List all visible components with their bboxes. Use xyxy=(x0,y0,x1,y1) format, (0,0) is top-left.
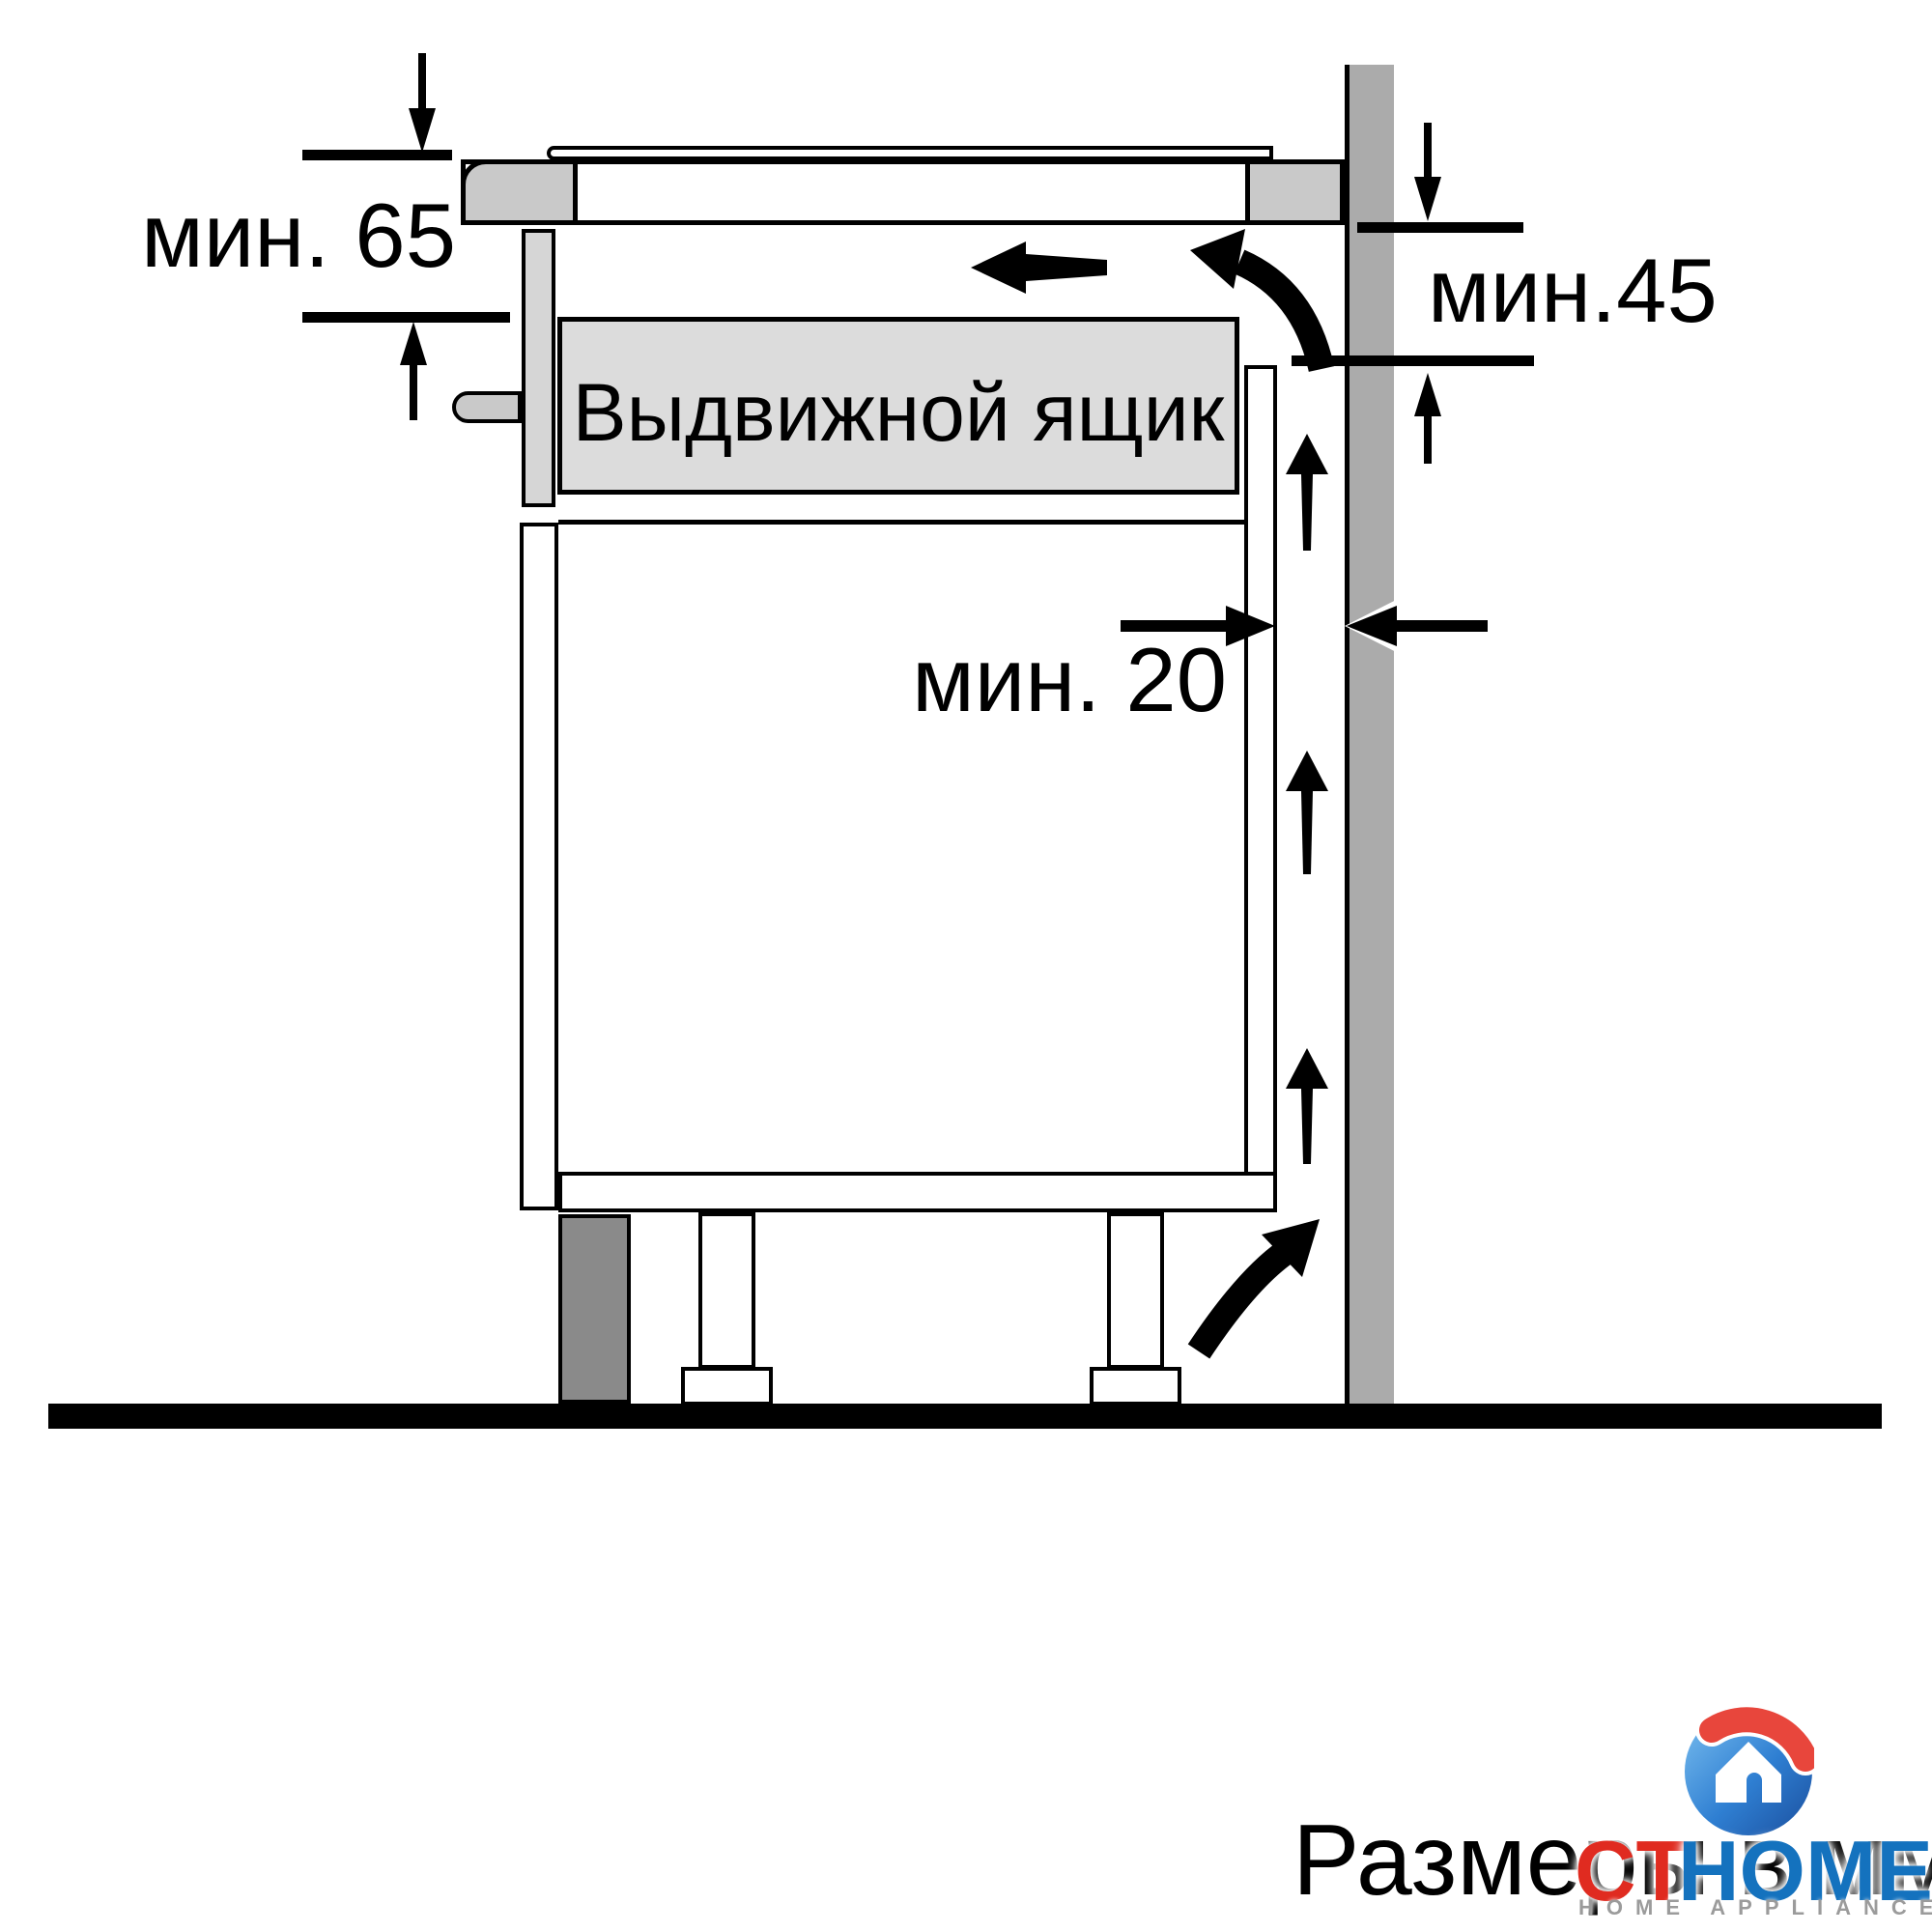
dim-label-right: мин.45 xyxy=(1428,245,1718,336)
cabinet-front-panel xyxy=(520,523,558,1210)
countertop-rear-strip xyxy=(1245,159,1345,225)
installation-diagram: Выдвижной ящик xyxy=(0,0,1932,1932)
dim-arrow-down-right xyxy=(1414,123,1441,221)
dim-label-rear-gap: мин. 20 xyxy=(903,635,1227,725)
brand-tagline: HOME APPLIANCES xyxy=(1578,1895,1932,1920)
dim-arrow-up-left xyxy=(400,322,427,420)
dim-arrow-down-left xyxy=(409,53,436,153)
countertop xyxy=(461,159,1345,225)
airflow-up-arrow-1 xyxy=(1286,434,1328,551)
dim-line-top-left xyxy=(302,150,452,160)
airflow-up-arrow-2 xyxy=(1286,751,1328,874)
dim-label-top-left: мин. 65 xyxy=(126,190,456,281)
leg-foot-front xyxy=(681,1367,773,1406)
dim-line-bottom-left xyxy=(302,312,510,323)
airflow-curved-arrow-bottom xyxy=(1199,1219,1320,1351)
airflow-left-arrow xyxy=(971,241,1107,294)
cabinet-leg-rear xyxy=(1107,1212,1164,1369)
cabinet-back-panel xyxy=(1244,365,1277,1210)
drawer-handle xyxy=(452,391,522,423)
cabinet-bottom-panel xyxy=(558,1172,1277,1212)
floor-line xyxy=(48,1404,1882,1429)
countertop-front-edge xyxy=(461,159,578,225)
wall-section xyxy=(1345,65,1394,1404)
drawer-front-panel xyxy=(522,229,555,507)
house-logo-icon xyxy=(1683,1707,1814,1836)
dim-line-bottom-right xyxy=(1292,355,1534,366)
leg-foot-rear xyxy=(1090,1367,1181,1406)
airflow-up-arrow-3 xyxy=(1286,1048,1328,1164)
dim-line-top-right xyxy=(1357,222,1523,233)
dim-arrow-up-right xyxy=(1414,373,1441,464)
drawer-box: Выдвижной ящик xyxy=(557,317,1239,495)
cooktop-glass xyxy=(547,146,1273,160)
cabinet-divider xyxy=(558,520,1244,525)
drawer-label: Выдвижной ящик xyxy=(573,353,1225,460)
plinth xyxy=(558,1214,631,1404)
cabinet-leg-front xyxy=(698,1212,755,1369)
